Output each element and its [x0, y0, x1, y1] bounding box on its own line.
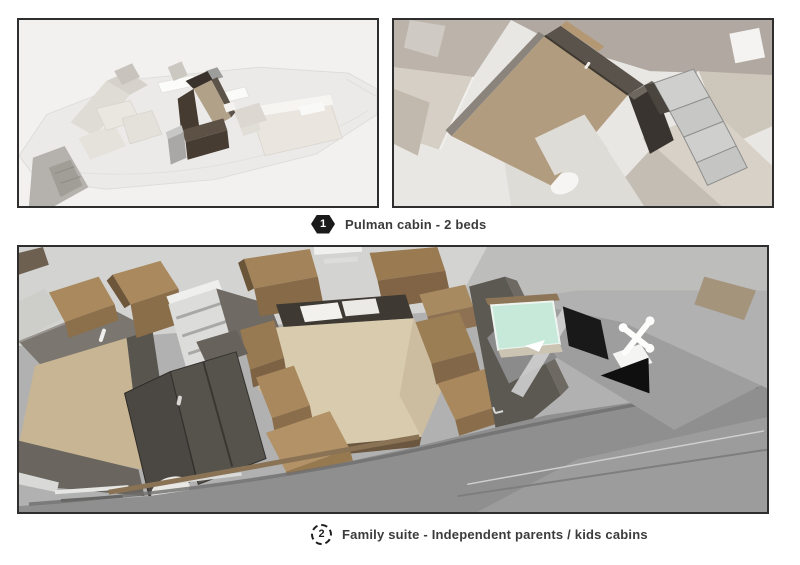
caption-family-suite-text: Family suite - Independent parents / kid…	[342, 527, 648, 542]
pillow	[342, 298, 380, 316]
step-1-badge-hexagon-icon: 1	[311, 215, 335, 234]
step-1-number: 1	[320, 218, 326, 230]
glass-teal	[491, 301, 560, 349]
render-family-suite	[19, 247, 767, 512]
caption-pulman-text: Pulman cabin - 2 beds	[345, 217, 486, 232]
caption-pulman: 1 Pulman cabin - 2 beds	[311, 214, 486, 234]
yacht-layout-infographic: 1 Pulman cabin - 2 beds	[0, 0, 800, 565]
step-2-badge-dashed-circle-icon: 2	[311, 524, 332, 545]
render-pulman-closeup	[394, 20, 772, 206]
render-pulman-overview	[19, 20, 377, 206]
panel-pulman-closeup	[392, 18, 774, 208]
panel-family-suite	[17, 245, 769, 514]
caption-family-suite: 2 Family suite - Independent parents / k…	[311, 524, 648, 544]
panel-pulman-overview	[17, 18, 379, 208]
step-2-number: 2	[318, 528, 324, 540]
